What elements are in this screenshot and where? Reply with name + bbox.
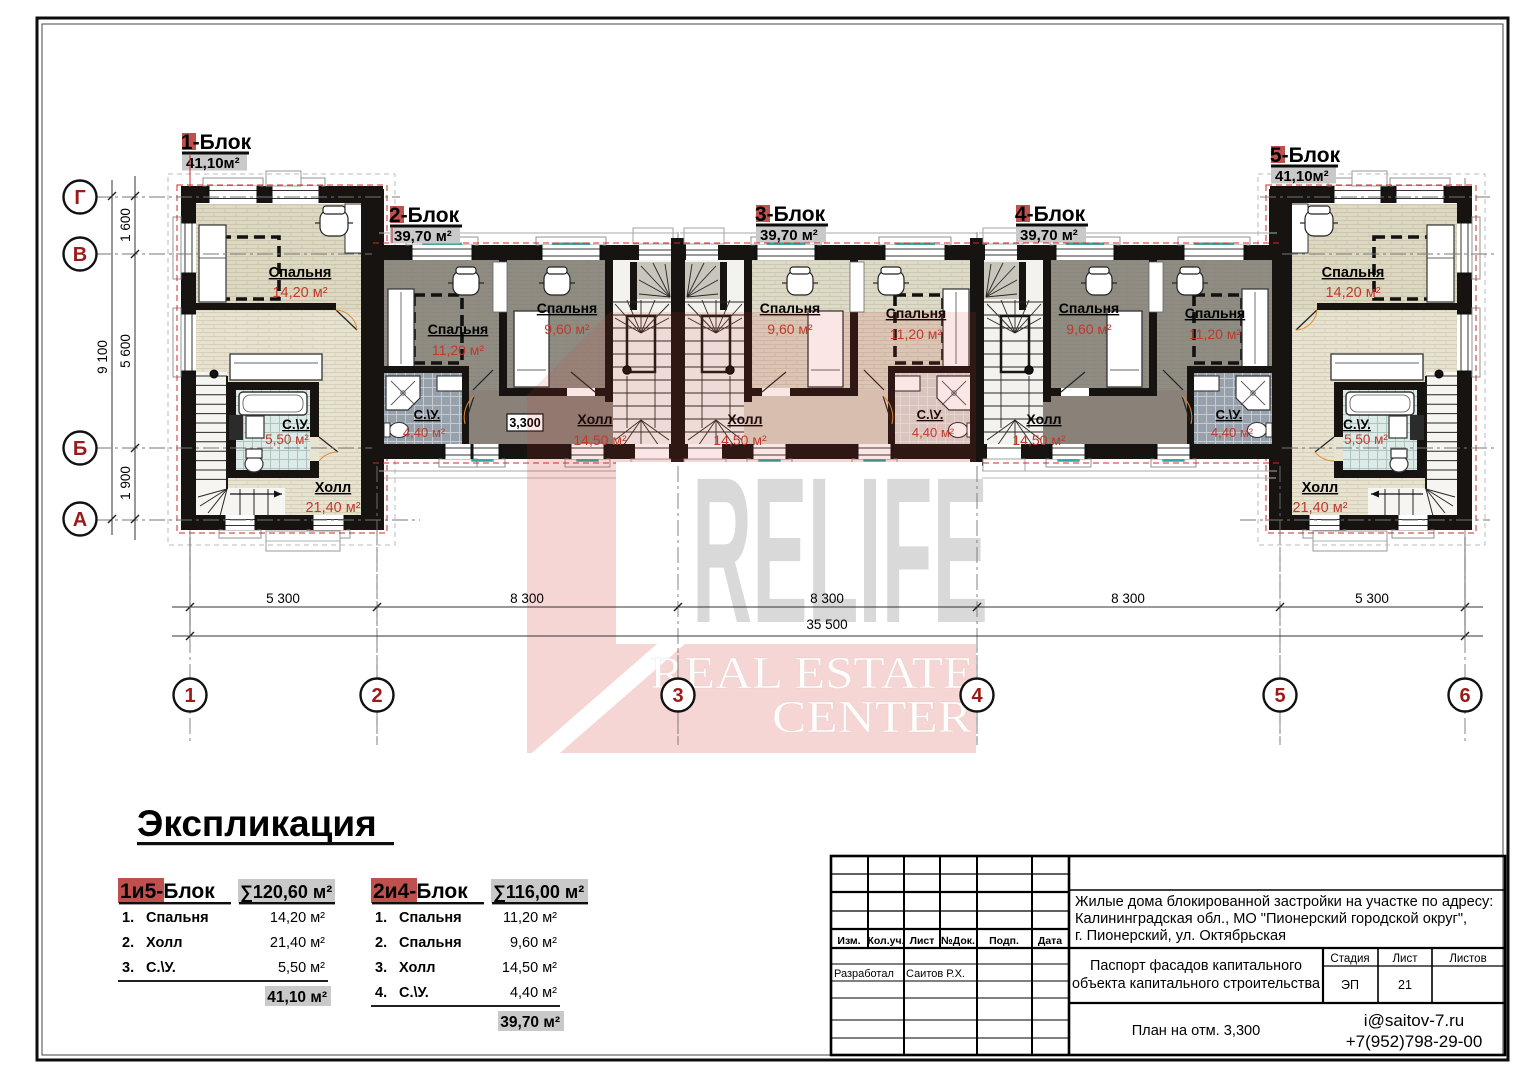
svg-text:С.\У.: С.\У. xyxy=(146,960,176,976)
svg-text:Кол.уч.: Кол.уч. xyxy=(867,935,904,947)
svg-text:С.\У.: С.\У. xyxy=(282,417,310,432)
svg-text:CENTER: CENTER xyxy=(772,691,972,742)
svg-text:объекта капитального строитель: объекта капитального строительства xyxy=(1072,976,1321,992)
svg-text:41,10м²: 41,10м² xyxy=(186,155,240,172)
svg-text:4,40 м²: 4,40 м² xyxy=(510,985,557,1001)
svg-text:Изм.: Изм. xyxy=(837,935,860,947)
svg-text:Холл: Холл xyxy=(1302,480,1338,496)
svg-text:Разработал: Разработал xyxy=(834,968,894,980)
svg-text:14,20 м²: 14,20 м² xyxy=(270,910,325,926)
svg-text:i@saitov-7.ru: i@saitov-7.ru xyxy=(1364,1011,1464,1030)
svg-text:Лист: Лист xyxy=(910,935,935,947)
svg-text:21,40 м²: 21,40 м² xyxy=(305,500,360,516)
svg-text:5,50 м²: 5,50 м² xyxy=(278,960,325,976)
svg-text:Спальня: Спальня xyxy=(146,910,209,926)
svg-text:4.: 4. xyxy=(375,985,387,1001)
svg-text:5,50 м²: 5,50 м² xyxy=(265,432,309,447)
svg-text:39,70 м²: 39,70 м² xyxy=(1020,227,1078,244)
svg-text:Паспорт фасадов капитального: Паспорт фасадов капитального xyxy=(1090,958,1302,974)
svg-text:Калининградская обл., МО "Пион: Калининградская обл., МО "Пионерский гор… xyxy=(1075,911,1467,927)
svg-text:4-Блок: 4-Блок xyxy=(1015,203,1086,226)
svg-text:41,10м²: 41,10м² xyxy=(1275,168,1329,185)
svg-text:Спальня: Спальня xyxy=(399,910,462,926)
svg-text:Спальня: Спальня xyxy=(1322,265,1385,281)
svg-text:Г: Г xyxy=(74,187,85,209)
svg-text:3: 3 xyxy=(672,685,683,707)
svg-text:39,70 м²: 39,70 м² xyxy=(394,228,452,245)
svg-text:RELIFE: RELIFE xyxy=(692,435,988,667)
svg-text:8 300: 8 300 xyxy=(510,591,544,606)
svg-text:39,70 м²: 39,70 м² xyxy=(760,227,818,244)
svg-text:8 300: 8 300 xyxy=(1111,591,1145,606)
svg-text:ЭП: ЭП xyxy=(1341,978,1359,992)
svg-text:С.\У.: С.\У. xyxy=(1216,407,1243,422)
svg-text:1.: 1. xyxy=(375,910,387,926)
svg-text:1 600: 1 600 xyxy=(118,208,133,242)
svg-text:5-Блок: 5-Блок xyxy=(1270,144,1341,167)
svg-text:Жилые дома блокированной застр: Жилые дома блокированной застройки на уч… xyxy=(1075,894,1493,910)
svg-text:Холл: Холл xyxy=(315,480,351,496)
svg-text:5 300: 5 300 xyxy=(266,591,300,606)
svg-text:4,40 м²: 4,40 м² xyxy=(1211,425,1254,440)
svg-text:4: 4 xyxy=(971,685,983,707)
svg-text:Экспликация: Экспликация xyxy=(137,803,377,844)
svg-text:14,50 м²: 14,50 м² xyxy=(1012,432,1066,448)
svg-text:21,40 м²: 21,40 м² xyxy=(270,935,325,951)
svg-text:14,20 м²: 14,20 м² xyxy=(272,285,327,301)
svg-text:№Док.: №Док. xyxy=(941,935,975,947)
svg-text:5 300: 5 300 xyxy=(1355,591,1389,606)
svg-text:11,20 м²: 11,20 м² xyxy=(1189,326,1242,342)
svg-text:8 300: 8 300 xyxy=(810,591,844,606)
svg-text:Листов: Листов xyxy=(1449,953,1486,965)
svg-text:г. Пионерский, ул. Октябрьская: г. Пионерский, ул. Октябрьская xyxy=(1075,928,1286,944)
svg-text:Спальня: Спальня xyxy=(1059,300,1119,316)
svg-text:21: 21 xyxy=(1398,978,1412,992)
svg-text:С.\У.: С.\У. xyxy=(414,407,441,422)
svg-text:3.: 3. xyxy=(375,960,387,976)
svg-text:6: 6 xyxy=(1459,685,1470,707)
svg-text:+7(952)798-29-00: +7(952)798-29-00 xyxy=(1346,1032,1483,1051)
svg-text:Б: Б xyxy=(73,438,87,460)
svg-text:2: 2 xyxy=(371,685,382,707)
svg-text:1и5-Блок: 1и5-Блок xyxy=(120,880,215,903)
svg-text:Дата: Дата xyxy=(1038,935,1062,947)
svg-text:5: 5 xyxy=(1274,685,1285,707)
svg-text:11,20 м²: 11,20 м² xyxy=(432,342,485,358)
svg-text:Холл: Холл xyxy=(1026,411,1061,427)
svg-text:3-Блок: 3-Блок xyxy=(755,203,826,226)
svg-text:11,20 м²: 11,20 м² xyxy=(503,910,557,926)
svg-text:5 600: 5 600 xyxy=(118,334,133,368)
svg-text:2.: 2. xyxy=(375,935,387,951)
svg-text:9,60 м²: 9,60 м² xyxy=(544,321,590,337)
svg-text:Стадия: Стадия xyxy=(1330,953,1369,965)
svg-text:Спальня: Спальня xyxy=(269,265,332,281)
svg-text:Лист: Лист xyxy=(1393,953,1419,965)
svg-text:Саитов Р.Х.: Саитов Р.Х. xyxy=(906,968,965,980)
svg-text:9,60 м²: 9,60 м² xyxy=(510,935,557,951)
svg-text:∑120,60 м²: ∑120,60 м² xyxy=(240,882,332,902)
svg-text:Холл: Холл xyxy=(146,935,182,951)
svg-text:9 100: 9 100 xyxy=(95,340,110,374)
svg-text:Подп.: Подп. xyxy=(989,935,1019,947)
svg-text:2-Блок: 2-Блок xyxy=(389,204,460,227)
svg-text:1.: 1. xyxy=(122,910,134,926)
svg-text:Спальня: Спальня xyxy=(399,935,462,951)
svg-text:План на отм. 3,300: План на отм. 3,300 xyxy=(1132,1023,1261,1039)
svg-text:2и4-Блок: 2и4-Блок xyxy=(373,880,468,903)
svg-text:2.: 2. xyxy=(122,935,134,951)
svg-text:1 900: 1 900 xyxy=(118,466,133,500)
svg-text:С.\У.: С.\У. xyxy=(399,985,429,1001)
svg-text:9,60 м²: 9,60 м² xyxy=(1066,321,1112,337)
svg-text:39,70 м²: 39,70 м² xyxy=(500,1014,560,1031)
svg-text:Спальня: Спальня xyxy=(537,300,597,316)
svg-text:14,50 м²: 14,50 м² xyxy=(502,960,557,976)
svg-text:С.\У.: С.\У. xyxy=(1343,417,1371,432)
svg-text:4,40 м²: 4,40 м² xyxy=(403,425,446,440)
svg-text:41,10 м²: 41,10 м² xyxy=(267,989,327,1006)
svg-text:5,50 м²: 5,50 м² xyxy=(1344,432,1388,447)
svg-text:Холл: Холл xyxy=(399,960,435,976)
svg-text:21,40 м²: 21,40 м² xyxy=(1292,500,1347,516)
svg-text:Спальня: Спальня xyxy=(1185,305,1245,321)
svg-text:14,20 м²: 14,20 м² xyxy=(1325,285,1380,301)
svg-text:3.: 3. xyxy=(122,960,134,976)
svg-text:∑116,00 м²: ∑116,00 м² xyxy=(493,882,584,902)
svg-text:Спальня: Спальня xyxy=(428,321,488,337)
svg-text:1: 1 xyxy=(184,685,195,707)
svg-text:А: А xyxy=(73,509,87,531)
svg-text:1-Блок: 1-Блок xyxy=(181,131,252,154)
svg-text:35 500: 35 500 xyxy=(806,617,847,632)
svg-text:В: В xyxy=(73,244,87,266)
